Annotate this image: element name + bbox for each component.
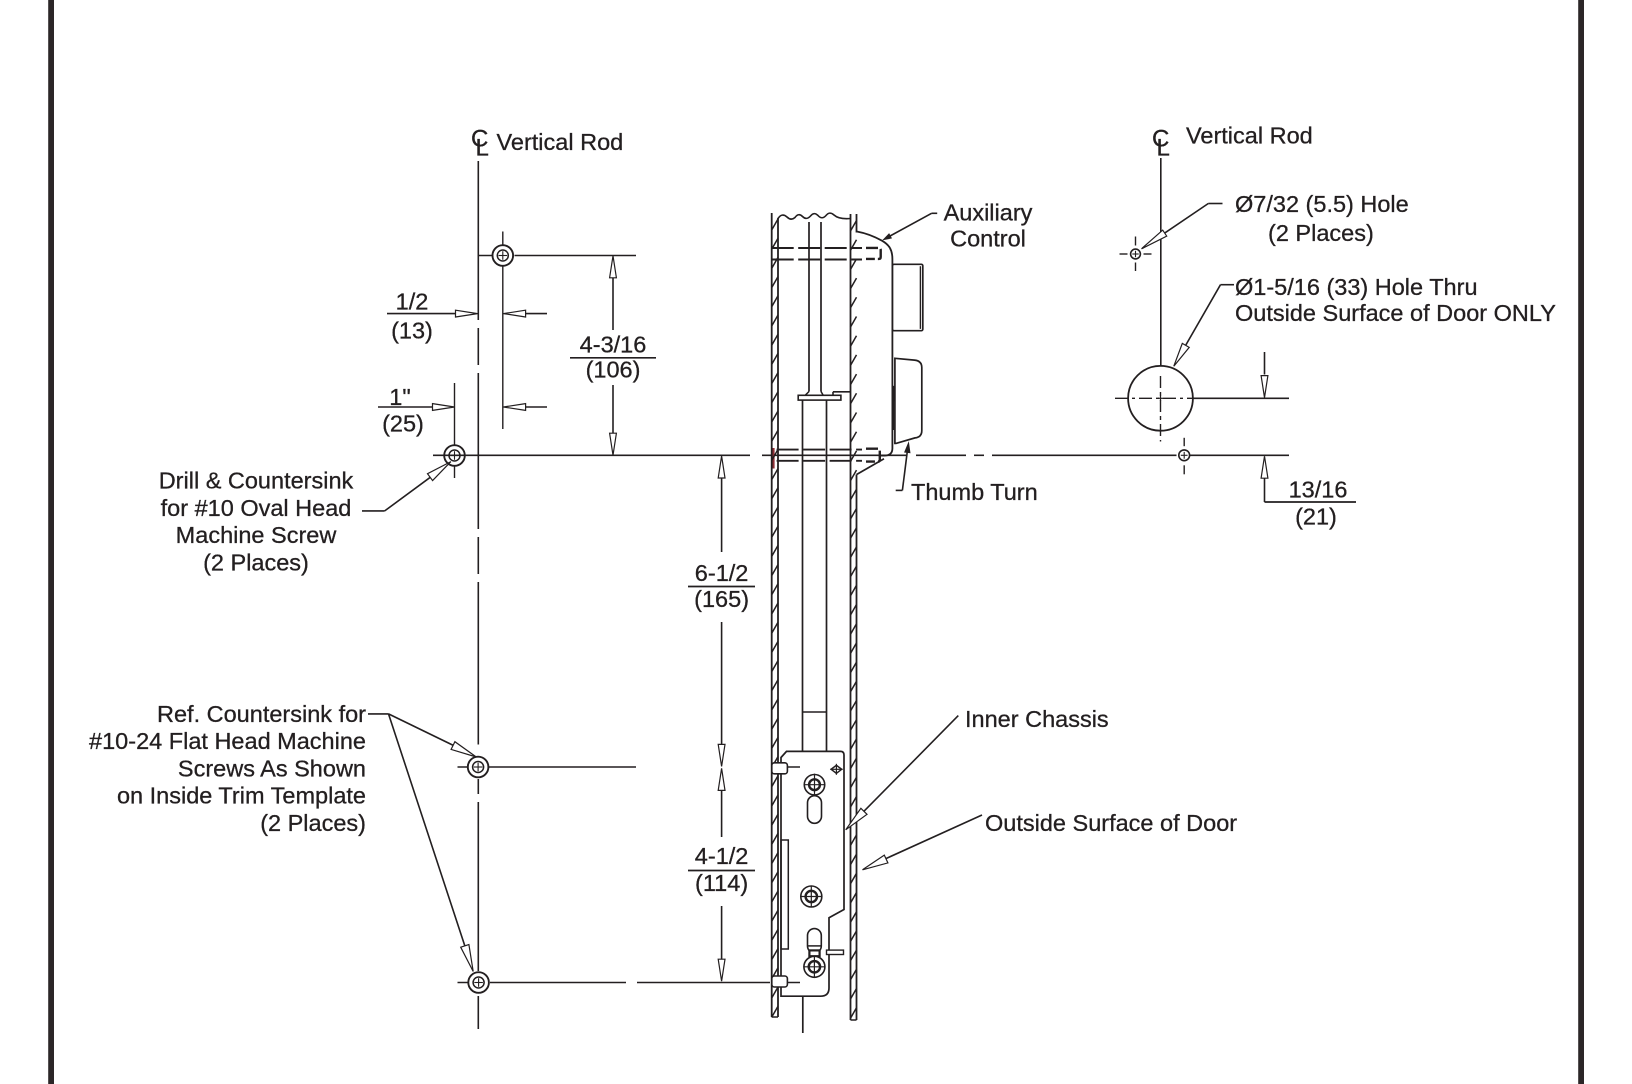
svg-text:Screws As Shown: Screws As Shown bbox=[178, 756, 366, 782]
svg-text:6-1/2: 6-1/2 bbox=[695, 560, 749, 586]
svg-text:(21): (21) bbox=[1295, 504, 1337, 530]
svg-text:(2 Places): (2 Places) bbox=[1268, 220, 1374, 246]
svg-text:Vertical Rod: Vertical Rod bbox=[1186, 123, 1313, 149]
svg-text:Control: Control bbox=[950, 226, 1026, 252]
svg-text:4-1/2: 4-1/2 bbox=[695, 843, 749, 869]
svg-text:Ref. Countersink for: Ref. Countersink for bbox=[157, 701, 366, 727]
svg-text:Vertical Rod: Vertical Rod bbox=[497, 129, 624, 155]
svg-text:(106): (106) bbox=[586, 357, 641, 383]
svg-text:L: L bbox=[1157, 135, 1170, 162]
svg-text:1": 1" bbox=[389, 384, 410, 410]
svg-text:(13): (13) bbox=[391, 318, 433, 344]
svg-text:Inner Chassis: Inner Chassis bbox=[965, 706, 1109, 732]
svg-text:13/16: 13/16 bbox=[1289, 477, 1348, 503]
svg-text:Ø1-5/16 (33) Hole Thru: Ø1-5/16 (33) Hole Thru bbox=[1235, 274, 1478, 300]
svg-text:Ø7/32 (5.5) Hole: Ø7/32 (5.5) Hole bbox=[1235, 191, 1409, 217]
svg-text:(25): (25) bbox=[382, 411, 424, 437]
svg-text:4-3/16: 4-3/16 bbox=[580, 332, 647, 358]
svg-text:Auxiliary: Auxiliary bbox=[944, 200, 1033, 226]
svg-text:#10-24 Flat Head Machine: #10-24 Flat Head Machine bbox=[89, 728, 366, 754]
svg-text:Thumb Turn: Thumb Turn bbox=[911, 479, 1038, 505]
svg-text:(2 Places): (2 Places) bbox=[203, 550, 309, 576]
svg-text:L: L bbox=[476, 135, 489, 162]
svg-text:(114): (114) bbox=[695, 870, 748, 896]
svg-text:for #10 Oval Head: for #10 Oval Head bbox=[161, 495, 352, 521]
svg-text:Drill & Countersink: Drill & Countersink bbox=[159, 468, 354, 494]
svg-text:(165): (165) bbox=[694, 586, 749, 612]
svg-text:1/2: 1/2 bbox=[396, 289, 429, 315]
svg-text:(2 Places): (2 Places) bbox=[260, 810, 366, 836]
svg-text:Outside Surface of Door: Outside Surface of Door bbox=[985, 810, 1237, 836]
svg-text:Outside Surface of Door ONLY: Outside Surface of Door ONLY bbox=[1235, 300, 1556, 326]
svg-text:Machine Screw: Machine Screw bbox=[176, 522, 338, 548]
svg-text:on Inside Trim Template: on Inside Trim Template bbox=[117, 783, 366, 809]
